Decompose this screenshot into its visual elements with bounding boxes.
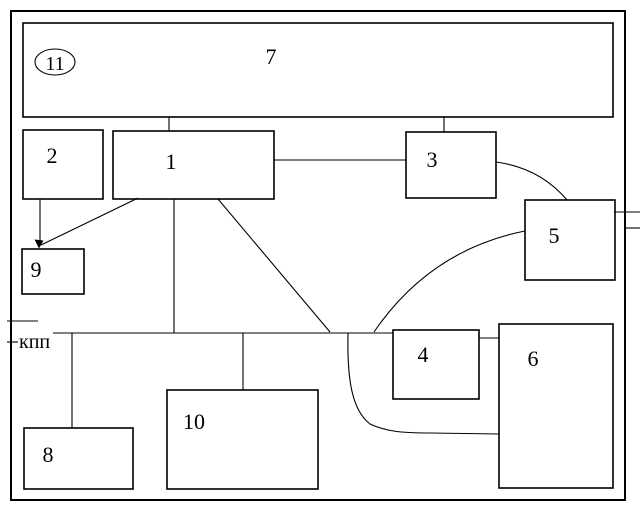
block-11-label: 11 xyxy=(45,53,64,75)
block-4-label: 4 xyxy=(418,342,429,367)
block-2-label: 2 xyxy=(47,143,58,168)
block-6-label: 6 xyxy=(528,346,539,371)
edge-3-to-5-curve xyxy=(496,162,567,200)
block-3-box xyxy=(406,132,496,198)
block-3-label: 3 xyxy=(427,147,438,172)
block-7-label: 7 xyxy=(266,44,277,69)
edge-1-to-bus-diagonal xyxy=(218,199,330,332)
edge-5-to-bus-curve xyxy=(374,231,525,332)
block-8-label: 8 xyxy=(43,442,54,467)
block-diagram: 7 11 2 1 3 5 9 4 6 8 10 кпп xyxy=(0,0,640,512)
block-10-box xyxy=(167,390,318,489)
edge-1-to-9-diagonal xyxy=(41,198,138,245)
block-1-label: 1 xyxy=(166,149,177,174)
block-5-box xyxy=(525,200,615,280)
kpp-port-label: кпп xyxy=(19,331,50,353)
block-1-box xyxy=(113,131,274,199)
block-9-label: 9 xyxy=(31,257,42,282)
block-2-box xyxy=(23,130,103,199)
block-5-label: 5 xyxy=(549,223,560,248)
block-10-label: 10 xyxy=(183,409,205,434)
block-4-box xyxy=(393,330,479,399)
diagram-canvas: 7 11 2 1 3 5 9 4 6 8 10 кпп xyxy=(0,0,640,512)
block-8-box xyxy=(24,428,133,489)
block-7-box xyxy=(23,23,613,117)
block-6-box xyxy=(499,324,613,488)
